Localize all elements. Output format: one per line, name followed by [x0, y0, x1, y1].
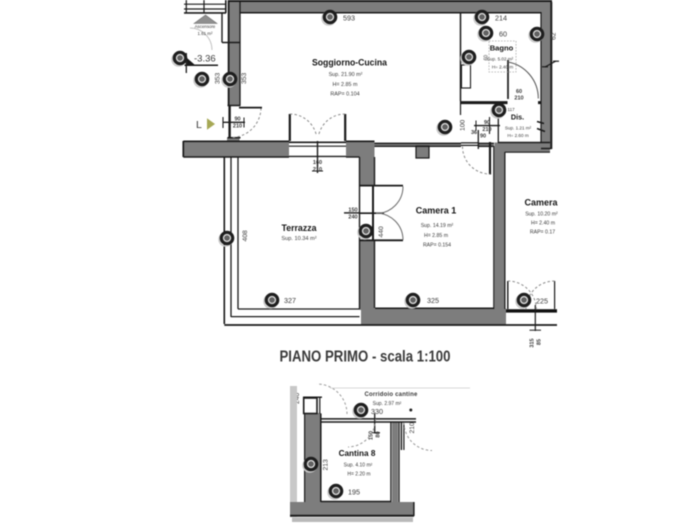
svg-text:Camera: Camera: [524, 198, 558, 208]
svg-text:Terrazza: Terrazza: [281, 223, 316, 233]
svg-text:593: 593: [343, 14, 355, 23]
svg-text:Sup. 21.90 m²: Sup. 21.90 m²: [329, 72, 363, 78]
svg-text:90: 90: [480, 134, 486, 140]
svg-text:210: 210: [409, 422, 416, 434]
svg-text:Corridoio cantine: Corridoio cantine: [364, 392, 418, 398]
svg-text:Sup. 10.20 m²: Sup. 10.20 m²: [525, 212, 558, 218]
svg-text:Sup. 2.97 m²: Sup. 2.97 m²: [373, 401, 402, 407]
svg-text:H= 2.60 m: H= 2.60 m: [507, 133, 528, 138]
svg-text:H= 2.85 m: H= 2.85 m: [424, 233, 448, 239]
svg-text:H= 2.85 m: H= 2.85 m: [332, 82, 358, 88]
svg-text:330: 330: [371, 407, 383, 416]
svg-text:Sup. 1.21 m²: Sup. 1.21 m²: [505, 126, 532, 131]
svg-text:Bagno: Bagno: [490, 44, 514, 53]
svg-text:Dis.: Dis.: [511, 113, 524, 122]
svg-text:90: 90: [234, 117, 240, 123]
svg-text:60: 60: [516, 89, 522, 95]
svg-text:117: 117: [508, 107, 516, 112]
svg-text:L: L: [196, 119, 202, 131]
svg-text:Cantina 8: Cantina 8: [339, 449, 376, 458]
svg-text:210: 210: [482, 127, 491, 133]
svg-text:62: 62: [551, 32, 558, 40]
svg-text:Sup. 4.10 m²: Sup. 4.10 m²: [344, 463, 373, 469]
svg-text:240: 240: [348, 215, 357, 221]
svg-text:90: 90: [484, 120, 490, 126]
svg-text:1.61 m²: 1.61 m²: [198, 31, 213, 36]
svg-text:315: 315: [530, 338, 536, 347]
svg-text:H= 2.40 m: H= 2.40 m: [531, 221, 555, 227]
svg-text:Ascensore: Ascensore: [195, 24, 216, 29]
svg-text:195: 195: [348, 488, 360, 497]
svg-text:PIANO PRIMO - scala 1:100: PIANO PRIMO - scala 1:100: [280, 349, 451, 366]
svg-text:353: 353: [215, 72, 222, 84]
svg-text:85: 85: [537, 339, 543, 345]
svg-text:213: 213: [323, 459, 330, 471]
svg-text:325: 325: [427, 296, 439, 305]
svg-text:440: 440: [378, 226, 385, 238]
svg-text:150: 150: [348, 208, 357, 214]
svg-text:H= 2.20 m: H= 2.20 m: [347, 472, 370, 478]
svg-text:210: 210: [313, 167, 322, 173]
svg-text:RAP= 0.104: RAP= 0.104: [330, 92, 359, 98]
svg-text:-3.36: -3.36: [194, 54, 216, 65]
svg-text:RAP= 0.154: RAP= 0.154: [423, 243, 451, 249]
svg-text:60: 60: [499, 30, 507, 39]
svg-text:100: 100: [460, 119, 467, 131]
svg-text:353: 353: [241, 72, 248, 84]
svg-text:Sup. 10.34 m²: Sup. 10.34 m²: [281, 236, 316, 242]
svg-text:H= 2.40 m: H= 2.40 m: [492, 65, 513, 70]
svg-text:Sup. 5.02 m²: Sup. 5.02 m²: [487, 57, 514, 62]
svg-text:210: 210: [514, 96, 523, 102]
svg-text:36: 36: [471, 130, 477, 136]
svg-text:327: 327: [284, 296, 296, 305]
svg-text:Sup. 14.19 m²: Sup. 14.19 m²: [421, 223, 454, 229]
svg-text:214: 214: [495, 14, 507, 23]
svg-text:Soggiorno-Cucina: Soggiorno-Cucina: [312, 57, 388, 68]
svg-text:Camera 1: Camera 1: [416, 206, 457, 216]
svg-text:RAP= 0.17: RAP= 0.17: [530, 230, 555, 236]
svg-text:225: 225: [536, 297, 548, 306]
svg-text:210: 210: [233, 124, 242, 130]
svg-text:408: 408: [242, 230, 249, 242]
svg-text:160: 160: [313, 160, 322, 166]
